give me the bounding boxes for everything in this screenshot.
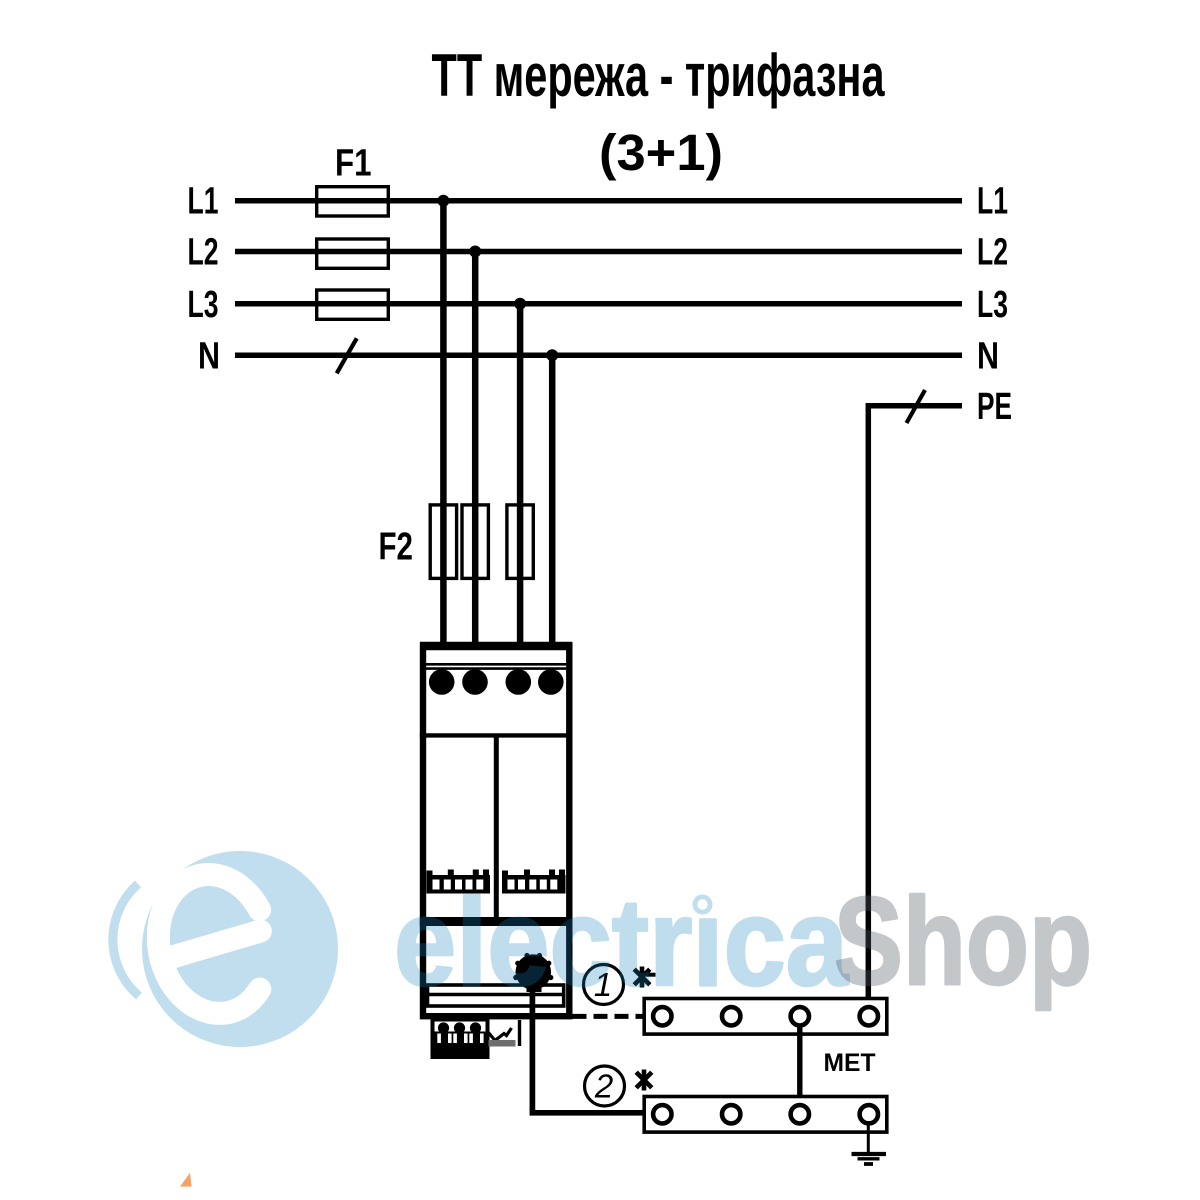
svg-text:F2: F2 xyxy=(379,526,414,569)
svg-text:L1: L1 xyxy=(977,181,1008,223)
svg-text:Shop: Shop xyxy=(834,873,1092,1011)
svg-text:PE: PE xyxy=(977,386,1012,428)
svg-text:L2: L2 xyxy=(977,232,1008,274)
svg-text:N: N xyxy=(977,336,999,378)
svg-text:L1: L1 xyxy=(188,181,219,223)
svg-text:F1: F1 xyxy=(335,143,372,185)
svg-text:(3+1): (3+1) xyxy=(599,124,723,181)
svg-text:2: 2 xyxy=(594,1068,613,1105)
svg-text:electrica: electrica xyxy=(394,874,849,1012)
svg-text:N: N xyxy=(198,336,220,378)
svg-text:MET: MET xyxy=(824,1049,876,1077)
svg-text:L3: L3 xyxy=(188,284,219,326)
svg-text:ТТ мережа - трифазна: ТТ мережа - трифазна xyxy=(432,42,885,109)
svg-text:L3: L3 xyxy=(977,284,1008,326)
svg-text:L2: L2 xyxy=(188,232,219,274)
